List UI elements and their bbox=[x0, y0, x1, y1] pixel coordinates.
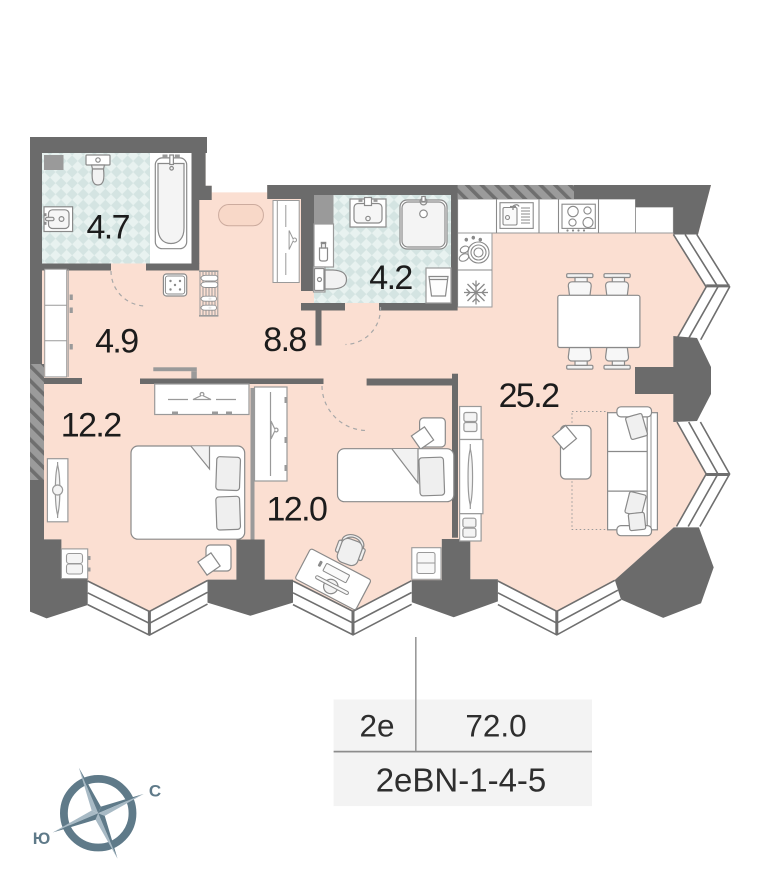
svg-text:4.9: 4.9 bbox=[95, 323, 138, 361]
svg-text:12.0: 12.0 bbox=[267, 491, 327, 529]
svg-text:Ю: Ю bbox=[33, 829, 51, 848]
svg-text:8.8: 8.8 bbox=[263, 321, 306, 359]
svg-text:2е: 2е bbox=[359, 708, 394, 744]
svg-text:25.2: 25.2 bbox=[499, 377, 559, 415]
svg-text:4.2: 4.2 bbox=[369, 259, 412, 297]
svg-text:4.7: 4.7 bbox=[86, 209, 129, 247]
svg-text:2еBN-1-4-5: 2еBN-1-4-5 bbox=[376, 761, 547, 798]
svg-text:12.2: 12.2 bbox=[61, 407, 121, 445]
svg-text:С: С bbox=[149, 782, 161, 801]
svg-text:72.0: 72.0 bbox=[465, 708, 526, 744]
